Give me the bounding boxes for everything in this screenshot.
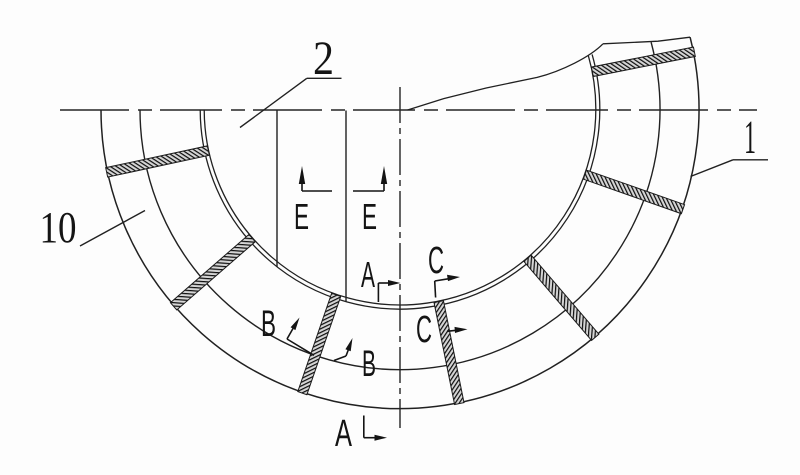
svg-text:1: 1 xyxy=(744,111,756,164)
svg-text:E: E xyxy=(294,196,309,237)
svg-text:E: E xyxy=(362,196,377,237)
svg-text:10: 10 xyxy=(40,203,77,252)
svg-text:B: B xyxy=(362,343,376,384)
svg-text:B: B xyxy=(261,303,276,344)
svg-text:A: A xyxy=(335,413,352,455)
svg-text:2: 2 xyxy=(313,32,334,85)
svg-text:A: A xyxy=(361,254,375,295)
svg-text:C: C xyxy=(428,240,444,282)
svg-text:C: C xyxy=(416,309,432,351)
